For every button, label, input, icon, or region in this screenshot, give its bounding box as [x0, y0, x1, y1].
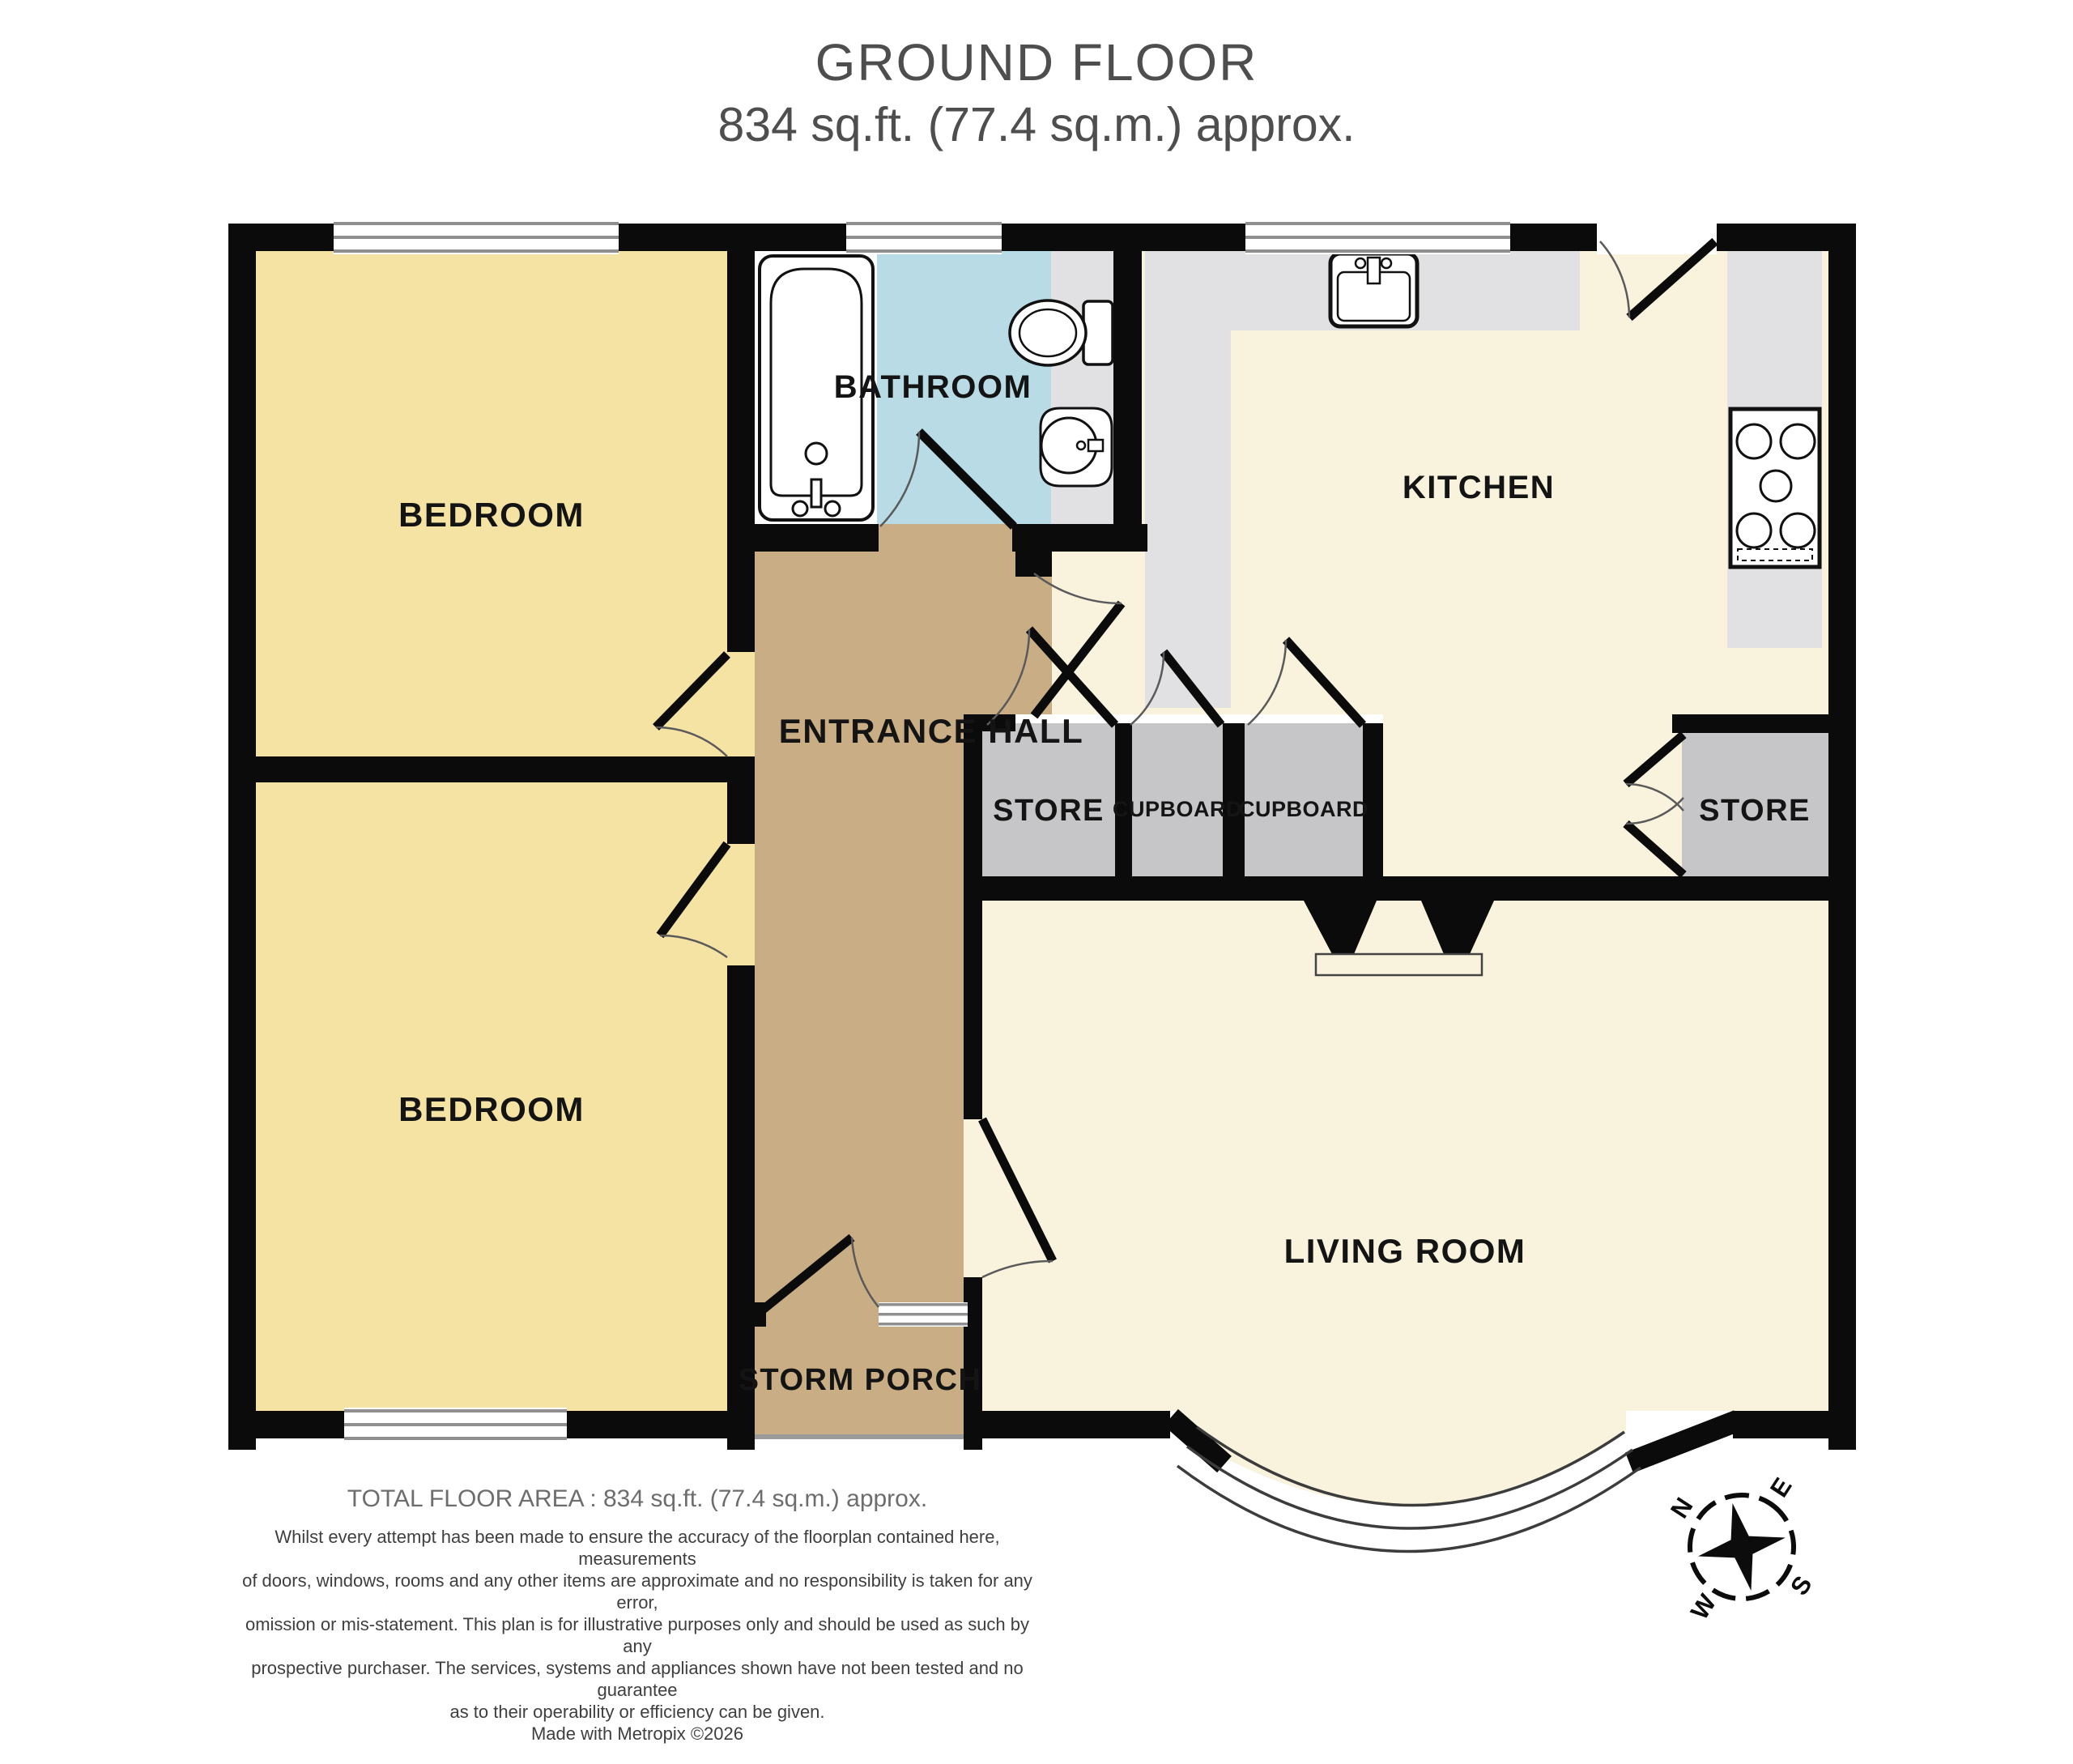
disclaimer: Whilst every attempt has been made to en…	[232, 1526, 1042, 1723]
wall-left	[228, 224, 256, 1450]
window-storm-porch	[879, 1302, 968, 1327]
metropix-credit: Made with Metropix ©2026	[232, 1723, 1042, 1745]
wall-store-right-top	[1672, 714, 1856, 733]
kitchen-back-door-opening	[1597, 219, 1717, 254]
label-living-room: LIVING ROOM	[1284, 1232, 1526, 1270]
wall-bedrooms-right-a	[727, 224, 755, 652]
disclaimer-line: of doors, windows, rooms and any other i…	[232, 1570, 1042, 1613]
wall-living-top	[964, 876, 1856, 901]
disclaimer-line: prospective purchaser. The services, sys…	[232, 1657, 1042, 1701]
wall-bathroom-right	[1113, 224, 1142, 552]
stove-hob-icon	[1730, 409, 1820, 567]
window-bedroom-bottom	[344, 1408, 567, 1442]
bay-jamb-right	[1629, 1421, 1738, 1463]
footer: TOTAL FLOOR AREA : 834 sq.ft. (77.4 sq.m…	[232, 1485, 1042, 1745]
total-floor-area: TOTAL FLOOR AREA : 834 sq.ft. (77.4 sq.m…	[232, 1485, 1042, 1513]
label-cupboard-left: CUPBOARD	[1113, 797, 1242, 821]
porch-threshold-line	[755, 1434, 964, 1439]
label-storm-porch: STORM PORCH	[739, 1363, 982, 1397]
doorway-bedroom-bottom	[727, 844, 755, 965]
label-bathroom: BATHROOM	[834, 369, 1032, 405]
compass-s: S	[1785, 1570, 1818, 1600]
doorway-living	[964, 1119, 982, 1277]
disclaimer-line: Whilst every attempt has been made to en…	[232, 1526, 1042, 1570]
wall-hall-right-a	[964, 714, 982, 1119]
room-kitchen-aisle	[1383, 714, 1682, 876]
window-bathroom	[846, 220, 1002, 254]
label-store-left: STORE	[993, 794, 1105, 828]
label-entrance-hall: ENTRANCE HALL	[779, 712, 1083, 750]
window-bedroom-top	[334, 220, 619, 254]
label-cupboard-right: CUPBOARD	[1239, 797, 1369, 821]
compass-star	[1698, 1503, 1786, 1591]
label-kitchen: KITCHEN	[1403, 470, 1555, 505]
label-store-right: STORE	[1699, 794, 1811, 828]
label-bedroom-top: BEDROOM	[398, 496, 585, 534]
wall-kitchen-hall	[1015, 524, 1052, 577]
compass-n: N	[1665, 1493, 1699, 1523]
wall-right	[1828, 224, 1856, 1450]
toilet-icon	[1010, 300, 1113, 365]
wall-bottom-right	[1733, 1411, 1856, 1438]
sink-basin-icon	[1041, 408, 1112, 486]
wall-bottom-center	[982, 1411, 1170, 1438]
label-bedroom-bottom: BEDROOM	[398, 1090, 585, 1128]
kitchen-counter-left	[1145, 249, 1231, 708]
fireplace-icon	[1304, 901, 1494, 975]
wall-bathroom-bottom-left	[727, 524, 879, 552]
floorplan-page: GROUND FLOOR 834 sq.ft. (77.4 sq.m.) app…	[0, 0, 2073, 1764]
compass-e: E	[1764, 1472, 1798, 1502]
wall-bedroom-divider	[228, 756, 755, 782]
disclaimer-line: as to their operability or efficiency ca…	[232, 1701, 1042, 1723]
doorway-bathroom	[879, 524, 1012, 552]
compass-icon: N E S W	[1624, 1434, 1856, 1663]
doorway-bedroom-top	[727, 652, 755, 757]
room-living	[982, 901, 1828, 1411]
kitchen-sink-icon	[1330, 254, 1417, 326]
disclaimer-line: omission or mis-statement. This plan is …	[232, 1613, 1042, 1657]
window-kitchen	[1245, 220, 1510, 254]
